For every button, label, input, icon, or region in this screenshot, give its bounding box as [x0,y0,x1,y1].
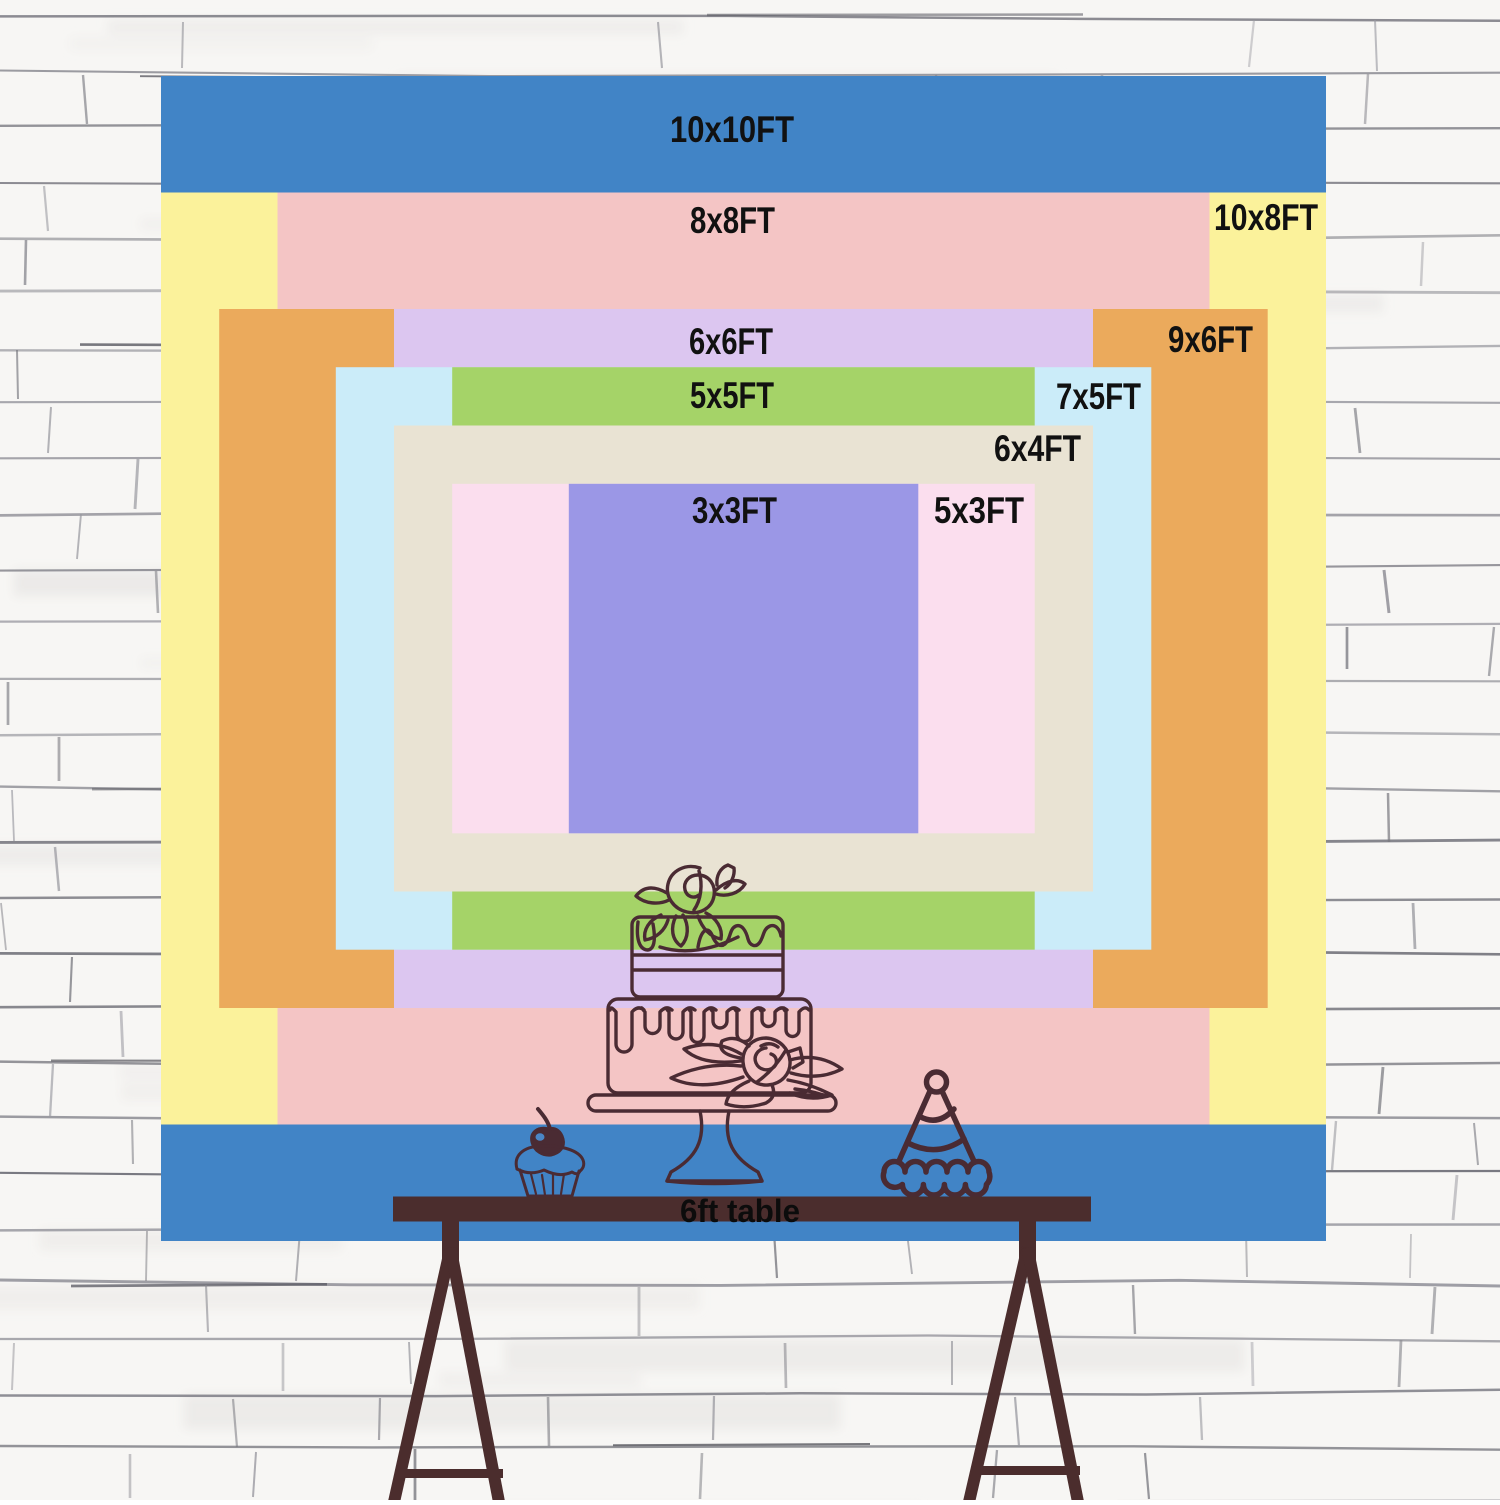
svg-text:5x3FT: 5x3FT [934,490,1024,531]
svg-text:6x4FT: 6x4FT [994,428,1081,469]
svg-text:6x6FT: 6x6FT [689,321,773,362]
svg-text:10x10FT: 10x10FT [670,109,794,150]
svg-text:5x5FT: 5x5FT [690,375,774,416]
svg-text:3x3FT: 3x3FT [692,490,777,531]
svg-text:7x5FT: 7x5FT [1056,376,1141,417]
svg-text:9x6FT: 9x6FT [1168,319,1253,360]
svg-text:6ft table: 6ft table [680,1193,800,1229]
svg-text:8x8FT: 8x8FT [690,200,775,241]
svg-text:10x8FT: 10x8FT [1214,197,1318,238]
